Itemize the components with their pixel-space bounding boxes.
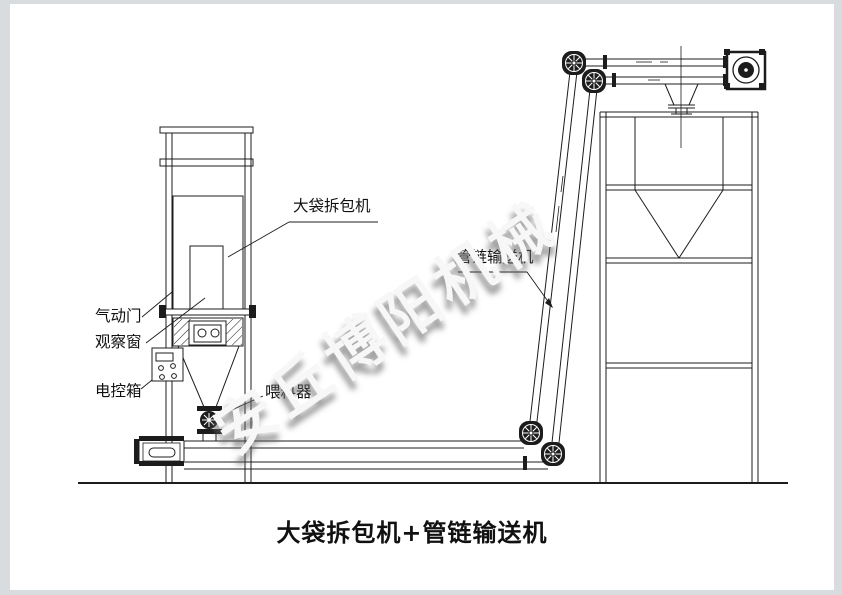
conveyor-bottom-run <box>184 441 548 470</box>
discharge-funnel <box>665 46 698 148</box>
corner-wheel-bottom-1 <box>520 422 543 445</box>
conveyor-top-run <box>585 55 727 87</box>
label-bag-breaker: 大袋拆包机 <box>293 197 371 215</box>
corner-wheel-bottom-2 <box>542 443 565 466</box>
label-pipe-chain-conveyor: 管链输送机 <box>456 248 534 266</box>
label-control-box: 电控箱 <box>95 382 142 400</box>
label-observation-window: 观察窗 <box>95 333 142 351</box>
drawing-caption: 大袋拆包机+管链输送机 <box>0 513 824 548</box>
hopper-support-frame <box>600 112 758 483</box>
conveyor-riser <box>529 63 598 452</box>
corner-wheel-top-1 <box>563 52 586 75</box>
drive-unit <box>723 49 765 89</box>
bag-compartment <box>190 246 223 310</box>
corner-wheel-top-2 <box>583 70 606 93</box>
drawing-page: 气动门 观察窗 电控箱 喂料器 大袋拆包机 管链输送机 安丘博阳机械 大袋拆包机… <box>0 0 842 595</box>
tail-tension-unit <box>134 436 184 466</box>
rotary-feeder <box>197 406 222 441</box>
control-box <box>152 348 183 381</box>
label-feeder: 喂料器 <box>265 383 312 401</box>
label-pneumatic-door: 气动门 <box>95 307 142 325</box>
machine-diagram: 气动门 观察窗 电控箱 喂料器 大袋拆包机 管链输送机 <box>0 0 842 595</box>
storage-hopper <box>635 117 723 258</box>
observation-window <box>189 321 226 345</box>
pneumatic-door-rail <box>163 309 254 315</box>
